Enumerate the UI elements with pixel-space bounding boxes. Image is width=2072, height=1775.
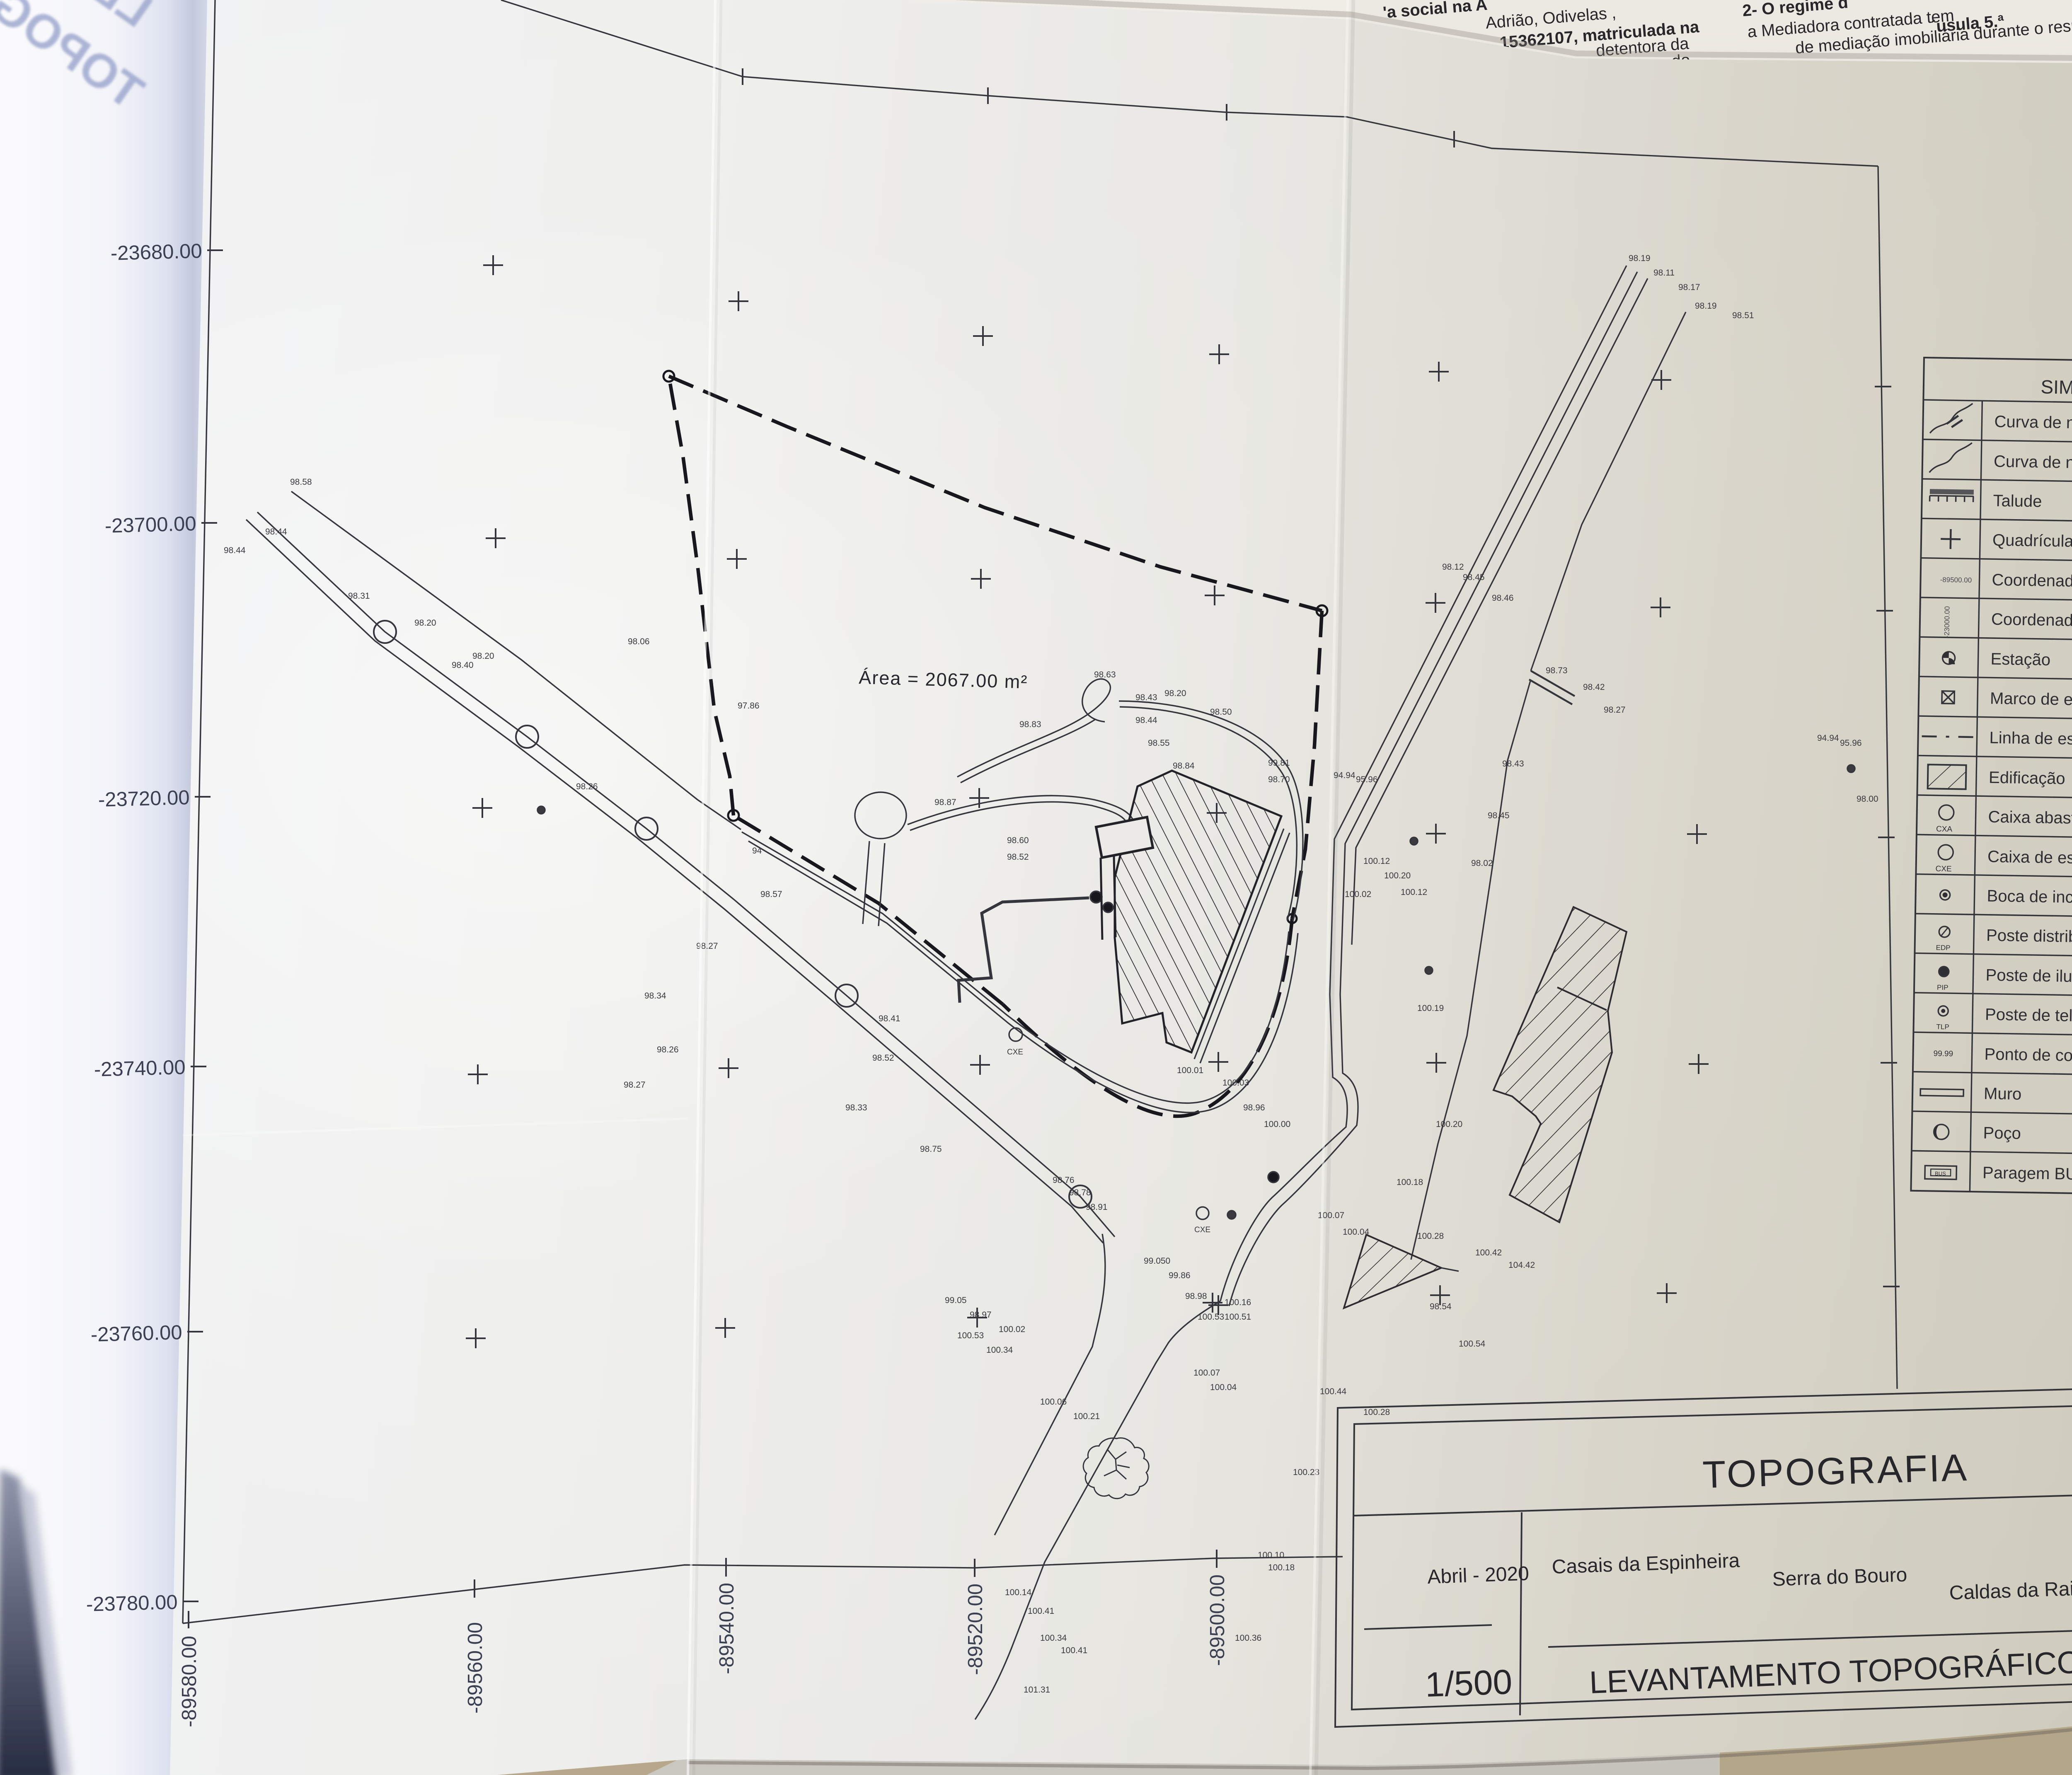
- svg-text:100.14: 100.14: [1005, 1588, 1032, 1597]
- svg-text:100.00: 100.00: [1264, 1120, 1290, 1129]
- svg-text:98.84: 98.84: [1173, 761, 1195, 771]
- svg-text:98.44: 98.44: [1135, 716, 1157, 725]
- svg-text:99.05: 99.05: [945, 1296, 967, 1305]
- svg-text:-23740.00: -23740.00: [94, 1056, 186, 1081]
- svg-text:100.51: 100.51: [1225, 1312, 1251, 1322]
- svg-text:100.18: 100.18: [1268, 1563, 1295, 1572]
- svg-text:98.76: 98.76: [1053, 1175, 1075, 1185]
- svg-text:100.06: 100.06: [1040, 1397, 1067, 1407]
- svg-text:94: 94: [752, 846, 762, 856]
- svg-text:98.97: 98.97: [970, 1310, 992, 1320]
- svg-text:98.44: 98.44: [265, 527, 287, 537]
- svg-text:98.26: 98.26: [657, 1045, 679, 1054]
- svg-text:98.43: 98.43: [1135, 693, 1157, 702]
- svg-text:100.41: 100.41: [1061, 1646, 1087, 1655]
- svg-text:98.96: 98.96: [1243, 1103, 1265, 1112]
- svg-text:98.44: 98.44: [224, 546, 246, 555]
- svg-text:98.83: 98.83: [1019, 720, 1041, 729]
- svg-text:100.07: 100.07: [1193, 1368, 1220, 1378]
- svg-text:99.050: 99.050: [1144, 1256, 1170, 1266]
- svg-text:98.50: 98.50: [1210, 707, 1232, 717]
- svg-text:98.34: 98.34: [644, 991, 666, 1001]
- svg-text:100.03: 100.03: [1222, 1078, 1249, 1088]
- svg-text:100.34: 100.34: [986, 1345, 1013, 1355]
- svg-text:-89500.00: -89500.00: [1206, 1574, 1229, 1666]
- svg-text:98.70: 98.70: [1268, 775, 1290, 784]
- svg-text:98.27: 98.27: [624, 1080, 646, 1090]
- svg-text:98.98: 98.98: [1185, 1291, 1207, 1301]
- svg-text:-89520.00: -89520.00: [964, 1584, 987, 1675]
- svg-text:-23720.00: -23720.00: [98, 786, 190, 811]
- svg-text:CXE: CXE: [1007, 1048, 1023, 1057]
- svg-text:97.86: 97.86: [738, 701, 760, 711]
- svg-text:98.55: 98.55: [1148, 738, 1170, 748]
- svg-text:100.02: 100.02: [999, 1325, 1025, 1334]
- svg-text:101.31: 101.31: [1024, 1685, 1050, 1695]
- svg-text:98.20: 98.20: [472, 651, 494, 661]
- svg-text:98.26: 98.26: [576, 782, 598, 791]
- svg-text:100.04: 100.04: [1210, 1383, 1237, 1392]
- svg-text:98.57: 98.57: [760, 890, 782, 899]
- svg-text:100.41: 100.41: [1028, 1606, 1054, 1616]
- svg-text:98.40: 98.40: [452, 660, 474, 670]
- svg-text:98.52: 98.52: [872, 1053, 894, 1063]
- svg-text:98.58: 98.58: [290, 477, 312, 487]
- svg-text:98.06: 98.06: [628, 637, 650, 646]
- svg-text:100.53: 100.53: [1198, 1312, 1224, 1322]
- svg-text:-89540.00: -89540.00: [716, 1583, 738, 1674]
- svg-text:98.75: 98.75: [920, 1144, 942, 1154]
- svg-text:100.10: 100.10: [1258, 1550, 1284, 1560]
- svg-text:98.20: 98.20: [414, 618, 436, 628]
- svg-text:98.41: 98.41: [879, 1014, 900, 1023]
- svg-text:100.01: 100.01: [1177, 1066, 1203, 1075]
- svg-text:-23760.00: -23760.00: [90, 1321, 182, 1346]
- svg-text:99.81: 99.81: [1268, 758, 1290, 768]
- svg-text:99.86: 99.86: [1169, 1271, 1191, 1280]
- svg-text:-23780.00: -23780.00: [86, 1591, 178, 1616]
- svg-text:CXE: CXE: [1194, 1226, 1210, 1234]
- svg-text:98.60: 98.60: [1007, 836, 1029, 845]
- svg-text:98.31: 98.31: [348, 591, 370, 601]
- svg-text:-89560.00: -89560.00: [464, 1622, 487, 1714]
- svg-text:-89580.00: -89580.00: [178, 1636, 201, 1727]
- svg-text:100.36: 100.36: [1235, 1633, 1261, 1643]
- svg-text:-23680.00: -23680.00: [110, 240, 202, 265]
- svg-text:98.87: 98.87: [934, 798, 956, 807]
- svg-text:100.21: 100.21: [1073, 1412, 1100, 1421]
- svg-text:98.91: 98.91: [1086, 1202, 1108, 1212]
- svg-text:98.20: 98.20: [1164, 689, 1186, 698]
- svg-text:98.52: 98.52: [1007, 852, 1029, 862]
- svg-text:98.63: 98.63: [1094, 670, 1116, 680]
- svg-text:100.53: 100.53: [957, 1331, 984, 1340]
- svg-text:98.33: 98.33: [845, 1103, 867, 1112]
- svg-text:98.78: 98.78: [1069, 1188, 1091, 1197]
- svg-text:100.16: 100.16: [1225, 1298, 1251, 1307]
- svg-text:-23700.00: -23700.00: [104, 513, 196, 537]
- svg-text:100.34: 100.34: [1040, 1633, 1067, 1643]
